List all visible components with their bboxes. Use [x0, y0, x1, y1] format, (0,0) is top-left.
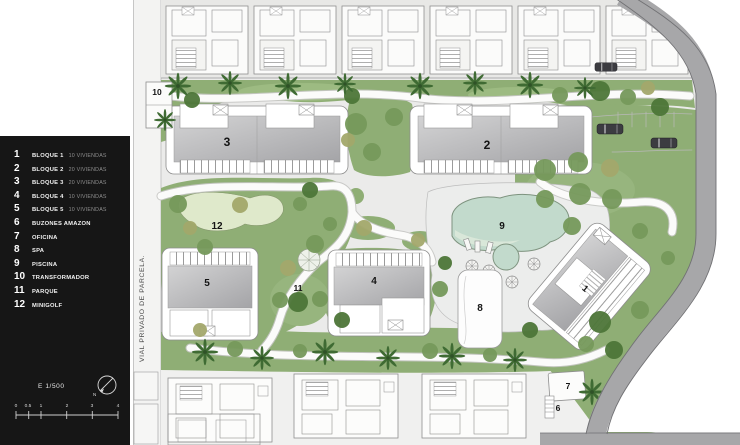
north-letter: N: [93, 392, 96, 397]
legend-item-label: PISCINA: [32, 262, 57, 268]
legend-item-label: BLOQUE 1: [32, 153, 64, 159]
legend-item-number: 4: [14, 190, 32, 201]
legend-item-number: 12: [14, 299, 32, 310]
plan-label-minigolf: 12: [211, 222, 222, 232]
legend-item-number: 10: [14, 271, 32, 282]
legend-item-label: PARQUE: [32, 289, 58, 295]
legend-item-detail: 20 VIVIENDAS: [69, 167, 107, 173]
legend-item: 8SPA: [14, 244, 126, 258]
buzones-amazon: [545, 396, 554, 418]
legend-item: 4BLOQUE 410 VIVIENDAS: [14, 190, 126, 204]
scale-tick-label: 1: [40, 404, 43, 409]
legend-item-detail: 20 VIVIENDAS: [69, 180, 107, 186]
legend-item: 6BUZONES AMAZON: [14, 217, 126, 231]
legend-item-number: 2: [14, 163, 32, 174]
legend-item-label: TRANSFORMADOR: [32, 275, 89, 281]
plan-label-bloque5: 5: [204, 279, 210, 289]
siteplan-page: 10 3 2 12 9 5 4 11 1 8 7 6 VIAL PRIVADO …: [0, 0, 740, 445]
legend-item-label: BLOQUE 5: [32, 207, 64, 213]
plan-label-bloque4: 4: [371, 277, 377, 287]
building-2: [410, 104, 592, 174]
plan-label-bloque2: 2: [484, 139, 491, 151]
plan-label-piscina: 9: [499, 222, 505, 232]
legend-item-label: BUZONES AMAZON: [32, 221, 91, 227]
legend-item: 1BLOQUE 110 VIVIENDAS: [14, 149, 126, 163]
plan-label-buzones: 6: [556, 404, 561, 413]
legend-item-number: 3: [14, 176, 32, 187]
north-arrow-icon: [92, 374, 124, 404]
scale-bar-rule: [14, 411, 120, 419]
neighbour-houses-bottom: [134, 368, 611, 445]
legend-item-number: 1: [14, 149, 32, 160]
scale-tick-label: 3: [91, 404, 94, 409]
legend-item-detail: 10 VIVIENDAS: [69, 207, 107, 213]
legend-item-label: BLOQUE 4: [32, 194, 64, 200]
legend-item: 7OFICINA: [14, 231, 126, 245]
legend-item-label: OFICINA: [32, 235, 58, 241]
plan-label-transformador: 10: [152, 88, 161, 97]
scale-tick-label: 2: [66, 404, 69, 409]
legend-item: 12MINIGOLF: [14, 299, 126, 313]
plan-label-oficina: 7: [566, 382, 571, 391]
building-3: [166, 104, 348, 174]
legend-item-number: 7: [14, 231, 32, 242]
scale-text: E 1/500: [38, 383, 65, 390]
legend-item-detail: 10 VIVIENDAS: [69, 194, 107, 200]
scale-tick-label: 4: [117, 404, 120, 409]
plan-label-spa: 8: [477, 304, 483, 314]
legend-list: 1BLOQUE 110 VIVIENDAS 2BLOQUE 220 VIVIEN…: [14, 149, 126, 312]
building-5: [162, 248, 258, 340]
legend-item-detail: 10 VIVIENDAS: [69, 153, 107, 159]
legend-item-number: 6: [14, 217, 32, 228]
legend-item: 10TRANSFORMADOR: [14, 271, 126, 285]
legend-item-label: BLOQUE 3: [32, 180, 64, 186]
private-road-label: VIAL PRIVADO DE PARCELA.: [139, 242, 153, 374]
legend-item-number: 11: [14, 285, 32, 296]
legend-item-label: MINIGOLF: [32, 303, 62, 309]
legend-item-number: 9: [14, 258, 32, 269]
scale-bar: 0 0.5 1 2 3 4: [14, 404, 120, 420]
north-arrow: N: [92, 374, 124, 404]
legend-item: 5BLOQUE 510 VIVIENDAS: [14, 203, 126, 217]
scale-tick-label: 0.5: [25, 404, 32, 409]
legend-item: 3BLOQUE 320 VIVIENDAS: [14, 176, 126, 190]
legend-item-number: 5: [14, 203, 32, 214]
legend-item-number: 8: [14, 244, 32, 255]
legend-item-label: BLOQUE 2: [32, 167, 64, 173]
scale-tick-label: 0: [15, 404, 18, 409]
legend-item: 2BLOQUE 220 VIVIENDAS: [14, 163, 126, 177]
round-pool: [493, 244, 519, 270]
legend-panel: 1BLOQUE 110 VIVIENDAS 2BLOQUE 220 VIVIEN…: [0, 136, 130, 445]
plan-label-bloque3: 3: [224, 136, 231, 148]
legend-item-label: SPA: [32, 248, 44, 254]
legend-item: 11PARQUE: [14, 285, 126, 299]
legend-item: 9PISCINA: [14, 258, 126, 272]
plan-label-parque: 11: [294, 284, 303, 293]
